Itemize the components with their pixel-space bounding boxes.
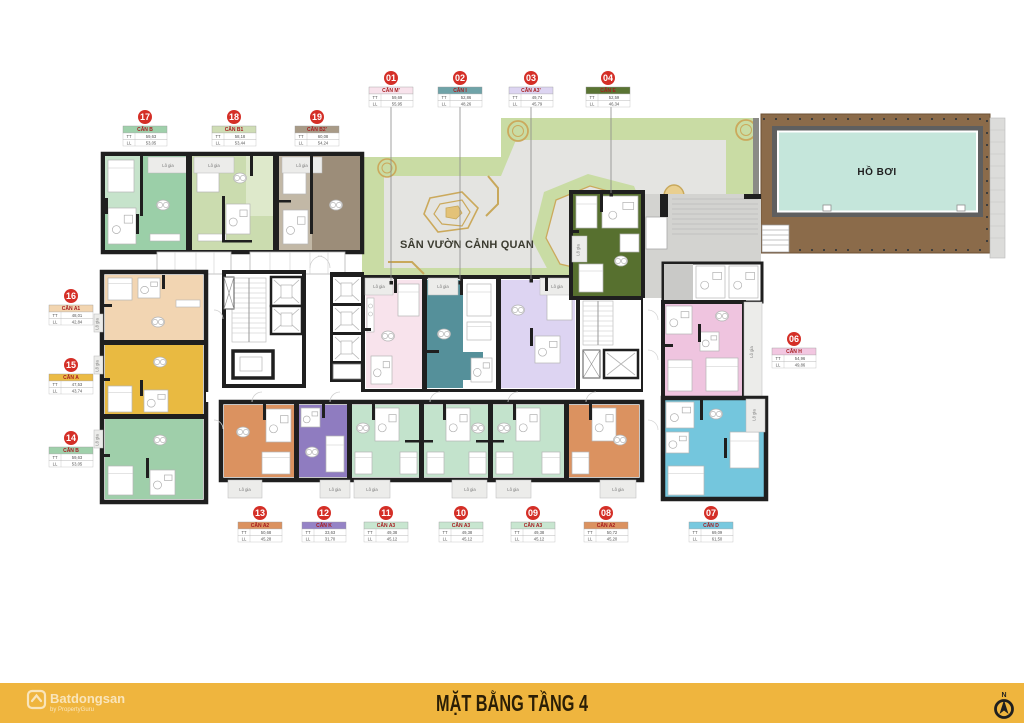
svg-text:CĂN A3: CĂN A3 bbox=[524, 522, 543, 529]
svg-text:LL: LL bbox=[299, 141, 304, 146]
svg-text:LL: LL bbox=[53, 389, 58, 394]
svg-text:TT: TT bbox=[367, 530, 373, 535]
svg-text:Lô gia: Lô gia bbox=[373, 284, 385, 289]
svg-text:10: 10 bbox=[456, 508, 466, 518]
svg-text:Lô gia: Lô gia bbox=[366, 487, 378, 492]
svg-text:CĂN A3’: CĂN A3’ bbox=[521, 87, 541, 94]
svg-text:CĂN H: CĂN H bbox=[786, 348, 802, 355]
svg-text:TT: TT bbox=[692, 530, 698, 535]
svg-text:LL: LL bbox=[53, 320, 58, 325]
svg-text:LL: LL bbox=[513, 102, 518, 107]
svg-text:TT: TT bbox=[298, 134, 304, 139]
svg-text:CĂN B: CĂN B bbox=[137, 126, 153, 133]
svg-text:CĂN I: CĂN I bbox=[453, 87, 467, 94]
svg-text:06: 06 bbox=[789, 334, 799, 344]
svg-text:LL: LL bbox=[693, 537, 698, 542]
svg-text:18: 18 bbox=[229, 112, 239, 122]
svg-text:TT: TT bbox=[52, 313, 58, 318]
svg-text:Lô gia: Lô gia bbox=[576, 244, 581, 256]
svg-text:17: 17 bbox=[140, 112, 150, 122]
svg-text:Lô gia: Lô gia bbox=[95, 360, 100, 372]
svg-text:CĂN A1: CĂN A1 bbox=[62, 305, 81, 312]
svg-text:LL: LL bbox=[590, 102, 595, 107]
svg-text:LL: LL bbox=[588, 537, 593, 542]
svg-text:CĂN A3: CĂN A3 bbox=[452, 522, 471, 529]
svg-text:LL: LL bbox=[776, 363, 781, 368]
svg-text:59,69: 59,69 bbox=[392, 95, 403, 100]
svg-text:16: 16 bbox=[66, 291, 76, 301]
svg-text:LL: LL bbox=[306, 537, 311, 542]
svg-text:Lô gia: Lô gia bbox=[239, 487, 251, 492]
svg-text:14: 14 bbox=[66, 433, 76, 443]
svg-text:49,86: 49,86 bbox=[795, 363, 806, 368]
svg-text:53,05: 53,05 bbox=[146, 141, 157, 146]
svg-text:09: 09 bbox=[528, 508, 538, 518]
svg-text:45,12: 45,12 bbox=[534, 537, 545, 542]
svg-text:45,12: 45,12 bbox=[387, 537, 398, 542]
svg-text:TT: TT bbox=[512, 95, 518, 100]
svg-text:Batdongsan: Batdongsan bbox=[50, 691, 125, 706]
svg-text:CĂN M’: CĂN M’ bbox=[382, 87, 400, 94]
svg-text:TT: TT bbox=[589, 95, 595, 100]
svg-text:Lô gia: Lô gia bbox=[208, 163, 220, 168]
svg-text:SÂN VƯỜN CẢNH QUAN: SÂN VƯỜN CẢNH QUAN bbox=[400, 238, 534, 251]
svg-text:TT: TT bbox=[305, 530, 311, 535]
svg-text:46,34: 46,34 bbox=[609, 102, 620, 107]
svg-text:Lô gia: Lô gia bbox=[612, 487, 624, 492]
svg-text:TT: TT bbox=[441, 95, 447, 100]
svg-text:53,44: 53,44 bbox=[235, 141, 246, 146]
svg-text:53,05: 53,05 bbox=[72, 462, 83, 467]
svg-text:LL: LL bbox=[216, 141, 221, 146]
svg-text:49,74: 49,74 bbox=[532, 95, 543, 100]
svg-text:13: 13 bbox=[255, 508, 265, 518]
svg-text:TT: TT bbox=[514, 530, 520, 535]
svg-text:Lô gia: Lô gia bbox=[162, 163, 174, 168]
svg-text:by PropertyGuru: by PropertyGuru bbox=[50, 707, 94, 713]
svg-text:33,63: 33,63 bbox=[325, 530, 336, 535]
svg-text:Lô gia: Lô gia bbox=[296, 163, 308, 168]
svg-text:55,95: 55,95 bbox=[392, 102, 403, 107]
svg-text:Lô gia: Lô gia bbox=[752, 409, 757, 421]
svg-text:TT: TT bbox=[52, 455, 58, 460]
svg-text:19: 19 bbox=[312, 112, 322, 122]
svg-text:TT: TT bbox=[775, 356, 781, 361]
svg-text:54,96: 54,96 bbox=[795, 356, 806, 361]
svg-text:59,63: 59,63 bbox=[72, 455, 83, 460]
svg-text:04: 04 bbox=[603, 73, 613, 83]
svg-text:08: 08 bbox=[601, 508, 611, 518]
svg-text:TT: TT bbox=[372, 95, 378, 100]
svg-text:LL: LL bbox=[373, 102, 378, 107]
svg-text:48,26: 48,26 bbox=[461, 102, 472, 107]
svg-text:LL: LL bbox=[242, 537, 247, 542]
svg-text:CĂN B: CĂN B bbox=[63, 447, 79, 454]
svg-text:31,70: 31,70 bbox=[325, 537, 336, 542]
svg-text:45,20: 45,20 bbox=[607, 537, 618, 542]
svg-text:CĂN D: CĂN D bbox=[703, 522, 719, 529]
svg-text:42,84: 42,84 bbox=[72, 320, 83, 325]
svg-text:01: 01 bbox=[386, 73, 396, 83]
svg-text:48,01: 48,01 bbox=[72, 313, 83, 318]
svg-text:TT: TT bbox=[442, 530, 448, 535]
svg-text:CĂN A2: CĂN A2 bbox=[251, 522, 270, 529]
svg-text:CĂN A: CĂN A bbox=[63, 374, 79, 381]
svg-text:07: 07 bbox=[706, 508, 716, 518]
svg-text:11: 11 bbox=[381, 508, 391, 518]
svg-text:47,53: 47,53 bbox=[72, 382, 83, 387]
svg-text:TT: TT bbox=[126, 134, 132, 139]
svg-text:CĂN A3: CĂN A3 bbox=[377, 522, 396, 529]
svg-text:LL: LL bbox=[127, 141, 132, 146]
svg-text:CĂN B1: CĂN B1 bbox=[225, 126, 244, 133]
svg-text:49,38: 49,38 bbox=[462, 530, 473, 535]
svg-text:52,86: 52,86 bbox=[461, 95, 472, 100]
svg-text:45,28: 45,28 bbox=[261, 537, 272, 542]
svg-text:45,79: 45,79 bbox=[532, 102, 543, 107]
svg-text:43,74: 43,74 bbox=[72, 389, 83, 394]
svg-text:50,72: 50,72 bbox=[607, 530, 618, 535]
svg-text:TT: TT bbox=[215, 134, 221, 139]
svg-text:CĂN A2: CĂN A2 bbox=[597, 522, 616, 529]
svg-text:Lô gia: Lô gia bbox=[437, 284, 449, 289]
svg-text:69,09: 69,09 bbox=[712, 530, 723, 535]
svg-text:LL: LL bbox=[442, 102, 447, 107]
svg-text:03: 03 bbox=[526, 73, 536, 83]
svg-text:50,68: 50,68 bbox=[261, 530, 272, 535]
svg-text:MẶT BẰNG TẦNG 4: MẶT BẰNG TẦNG 4 bbox=[436, 689, 588, 716]
svg-text:45,12: 45,12 bbox=[462, 537, 473, 542]
svg-text:49,38: 49,38 bbox=[387, 530, 398, 535]
svg-text:CĂN B2’: CĂN B2’ bbox=[307, 126, 328, 133]
svg-text:Lô gia: Lô gia bbox=[507, 487, 519, 492]
svg-text:CĂN E: CĂN E bbox=[600, 87, 616, 94]
svg-text:Lô gia: Lô gia bbox=[551, 284, 563, 289]
svg-text:12: 12 bbox=[319, 508, 329, 518]
svg-text:LL: LL bbox=[53, 462, 58, 467]
svg-text:02: 02 bbox=[455, 73, 465, 83]
svg-text:LL: LL bbox=[368, 537, 373, 542]
svg-text:Lô gia: Lô gia bbox=[95, 434, 100, 446]
svg-text:LL: LL bbox=[515, 537, 520, 542]
svg-text:CĂN K: CĂN K bbox=[316, 522, 332, 529]
svg-text:60,08: 60,08 bbox=[318, 134, 329, 139]
svg-text:61,50: 61,50 bbox=[712, 537, 723, 542]
svg-text:Lô gia: Lô gia bbox=[749, 346, 754, 358]
svg-text:LL: LL bbox=[443, 537, 448, 542]
svg-text:58,18: 58,18 bbox=[235, 134, 246, 139]
svg-text:49,38: 49,38 bbox=[534, 530, 545, 535]
svg-text:HỒ BƠI: HỒ BƠI bbox=[857, 165, 896, 178]
svg-text:Lô gia: Lô gia bbox=[329, 487, 341, 492]
svg-text:N: N bbox=[1001, 692, 1006, 699]
svg-text:15: 15 bbox=[66, 360, 76, 370]
svg-text:59,63: 59,63 bbox=[146, 134, 157, 139]
svg-text:54,24: 54,24 bbox=[318, 141, 329, 146]
svg-text:52,59: 52,59 bbox=[609, 95, 620, 100]
svg-text:TT: TT bbox=[52, 382, 58, 387]
svg-text:TT: TT bbox=[587, 530, 593, 535]
svg-text:Lô gia: Lô gia bbox=[95, 318, 100, 330]
svg-text:TT: TT bbox=[241, 530, 247, 535]
svg-text:Lô gia: Lô gia bbox=[464, 487, 476, 492]
